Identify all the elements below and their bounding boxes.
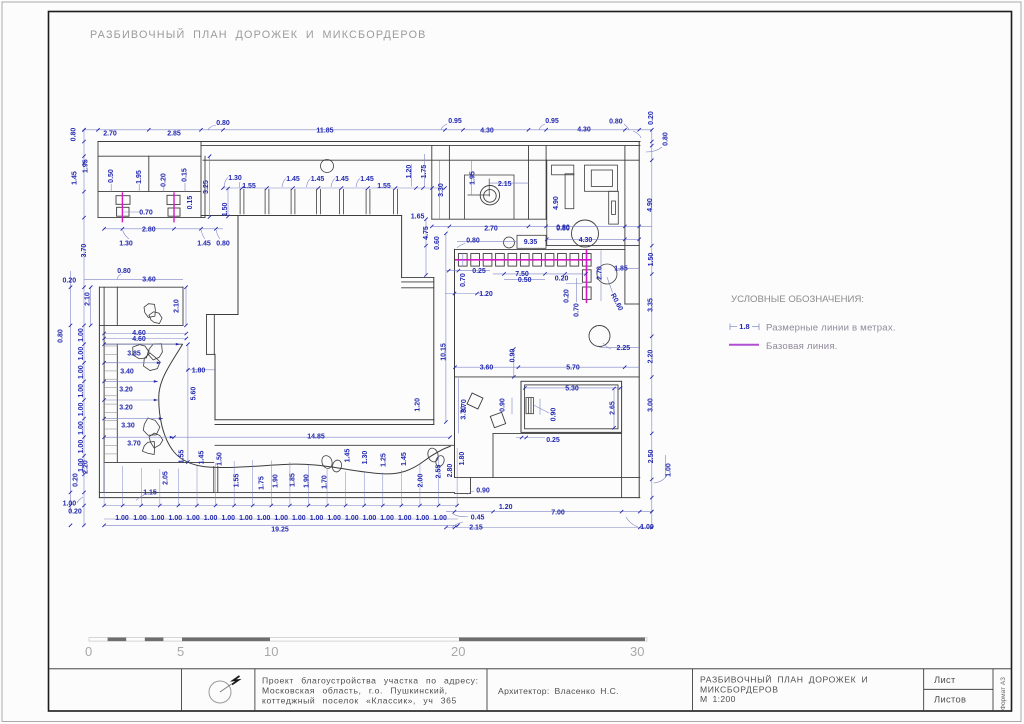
svg-text:0.20: 0.20	[68, 508, 82, 515]
svg-text:3.70: 3.70	[127, 440, 141, 447]
svg-text:0.90: 0.90	[500, 398, 507, 412]
svg-text:3.40: 3.40	[120, 368, 134, 375]
svg-text:3.60: 3.60	[142, 276, 156, 283]
svg-text:0: 0	[85, 644, 92, 659]
svg-text:3.30: 3.30	[438, 183, 445, 197]
svg-text:1.95: 1.95	[82, 159, 89, 173]
svg-text:3.85: 3.85	[127, 350, 141, 357]
svg-text:1.30: 1.30	[119, 240, 133, 247]
svg-text:1.15: 1.15	[143, 490, 157, 497]
svg-text:0.20: 0.20	[160, 173, 167, 187]
svg-text:1.00: 1.00	[78, 347, 85, 361]
svg-text:3.20: 3.20	[119, 404, 133, 411]
svg-text:Формат А3: Формат А3	[1000, 677, 1007, 710]
svg-text:РАЗБИВОЧНЫЙ ПЛАН ДОРОЖЕК И МИК: РАЗБИВОЧНЫЙ ПЛАН ДОРОЖЕК И МИКСБОРДЕРОВ	[90, 28, 427, 41]
svg-text:0.90: 0.90	[550, 408, 557, 422]
svg-text:4.75: 4.75	[423, 226, 430, 240]
svg-text:0.20: 0.20	[563, 289, 570, 303]
svg-text:2.70: 2.70	[597, 266, 604, 280]
svg-text:1.00: 1.00	[380, 515, 394, 522]
svg-text:4.90: 4.90	[647, 198, 654, 212]
svg-text:1.00: 1.00	[78, 328, 85, 342]
svg-text:0.60: 0.60	[434, 236, 441, 250]
svg-text:1.20: 1.20	[414, 398, 421, 412]
svg-text:1.55: 1.55	[242, 183, 256, 190]
svg-text:0.80: 0.80	[556, 225, 570, 232]
svg-text:2.50: 2.50	[648, 449, 655, 463]
svg-text:2.70: 2.70	[484, 225, 498, 232]
svg-text:1.45: 1.45	[311, 176, 325, 183]
svg-text:1.95: 1.95	[136, 170, 143, 184]
svg-text:0.80: 0.80	[216, 120, 230, 127]
svg-text:3.35: 3.35	[647, 298, 654, 312]
svg-text:2.55: 2.55	[435, 465, 442, 479]
svg-text:2.85: 2.85	[167, 130, 181, 137]
svg-text:1.45: 1.45	[198, 451, 205, 465]
svg-text:1.50: 1.50	[648, 253, 655, 267]
svg-text:5: 5	[177, 644, 184, 659]
svg-text:1.90: 1.90	[272, 474, 279, 488]
svg-text:0.15: 0.15	[181, 168, 188, 182]
svg-text:1.25: 1.25	[380, 453, 387, 467]
svg-text:1.00: 1.00	[204, 515, 218, 522]
svg-text:1.55: 1.55	[178, 450, 185, 464]
svg-text:9.35: 9.35	[524, 239, 538, 246]
svg-text:0.70: 0.70	[460, 273, 467, 287]
svg-text:0.80: 0.80	[609, 118, 623, 125]
svg-text:МИКСБОРДЕРОВ: МИКСБОРДЕРОВ	[700, 685, 779, 695]
svg-text:Базовая линия.: Базовая линия.	[766, 341, 838, 352]
svg-text:11.85: 11.85	[316, 127, 333, 134]
svg-text:3.30: 3.30	[121, 422, 135, 429]
svg-text:0.20: 0.20	[555, 276, 569, 283]
svg-text:0.95: 0.95	[545, 118, 559, 125]
svg-text:1.00: 1.00	[186, 515, 200, 522]
svg-text:0.95: 0.95	[448, 118, 462, 125]
svg-text:2.80: 2.80	[447, 464, 454, 478]
svg-text:19.25: 19.25	[271, 526, 289, 533]
svg-text:1.00: 1.00	[327, 515, 341, 522]
svg-text:1.30: 1.30	[228, 175, 242, 182]
svg-text:1.00: 1.00	[168, 515, 182, 522]
svg-text:1.00: 1.00	[345, 515, 359, 522]
svg-text:Размерные линии в метрах.: Размерные линии в метрах.	[766, 323, 896, 334]
svg-text:0.45: 0.45	[471, 514, 485, 521]
svg-text:2.20: 2.20	[82, 460, 89, 474]
svg-text:4.30: 4.30	[577, 126, 591, 133]
svg-text:3.20: 3.20	[119, 386, 133, 393]
svg-text:2.65: 2.65	[609, 401, 616, 415]
svg-text:0.15: 0.15	[187, 196, 194, 210]
svg-text:0.80: 0.80	[466, 238, 480, 245]
svg-text:1.00: 1.00	[239, 515, 253, 522]
svg-text:3.70: 3.70	[81, 244, 88, 258]
svg-text:0.80: 0.80	[216, 240, 230, 247]
svg-text:1.80: 1.80	[192, 367, 206, 374]
svg-text:0.70: 0.70	[139, 209, 153, 216]
svg-text:1.00: 1.00	[221, 515, 235, 522]
svg-text:1.00: 1.00	[274, 515, 288, 522]
svg-text:1.75: 1.75	[258, 476, 265, 490]
svg-text:1.00: 1.00	[257, 515, 271, 522]
svg-text:1.20: 1.20	[479, 291, 493, 298]
svg-text:1.45: 1.45	[71, 171, 78, 185]
svg-text:2.80: 2.80	[142, 227, 156, 234]
svg-text:1.80: 1.80	[459, 452, 466, 466]
svg-text:1.45: 1.45	[344, 449, 351, 463]
svg-text:1.8: 1.8	[739, 322, 749, 331]
svg-text:2.20: 2.20	[647, 350, 654, 364]
svg-text:1.65: 1.65	[411, 213, 425, 220]
svg-text:1.00: 1.00	[292, 515, 306, 522]
svg-text:5.60: 5.60	[190, 387, 197, 401]
svg-text:5.70: 5.70	[566, 364, 580, 371]
svg-text:4.60: 4.60	[132, 336, 146, 343]
svg-text:1.00: 1.00	[78, 384, 85, 398]
svg-text:1.45: 1.45	[197, 240, 211, 247]
svg-text:1.55: 1.55	[233, 474, 240, 488]
svg-text:10: 10	[264, 644, 278, 659]
svg-text:7.00: 7.00	[551, 510, 565, 517]
svg-text:1.95: 1.95	[469, 171, 476, 185]
svg-text:0.80: 0.80	[117, 268, 131, 275]
svg-text:1.55: 1.55	[377, 183, 391, 190]
svg-text:1.30: 1.30	[362, 451, 369, 465]
svg-text:0.80: 0.80	[57, 329, 64, 343]
svg-text:4.30: 4.30	[480, 127, 494, 134]
svg-text:4.90: 4.90	[553, 196, 560, 210]
svg-text:1.90: 1.90	[303, 474, 310, 488]
svg-text:1.45: 1.45	[286, 176, 300, 183]
svg-text:1.20: 1.20	[406, 165, 413, 179]
svg-text:1.85: 1.85	[289, 473, 296, 487]
svg-text:Архитектор: Власенко Н.С.: Архитектор: Власенко Н.С.	[498, 686, 619, 696]
svg-text:1.00: 1.00	[665, 463, 672, 477]
svg-text:14.85: 14.85	[307, 433, 325, 440]
svg-text:1.00: 1.00	[115, 515, 129, 522]
svg-text:2.70: 2.70	[103, 130, 117, 137]
svg-text:0.20: 0.20	[72, 473, 79, 487]
svg-text:1.20: 1.20	[499, 504, 513, 511]
svg-text:1.50: 1.50	[222, 202, 229, 216]
svg-text:Листов: Листов	[934, 695, 966, 705]
svg-text:2.05: 2.05	[162, 471, 169, 485]
svg-text:1.45: 1.45	[335, 176, 349, 183]
svg-text:1.70: 1.70	[321, 475, 328, 489]
svg-text:0.80: 0.80	[70, 128, 77, 142]
svg-text:1.45: 1.45	[401, 452, 408, 466]
svg-text:10.15: 10.15	[440, 343, 447, 361]
svg-text:5.30: 5.30	[565, 385, 579, 392]
svg-text:1.00: 1.00	[310, 515, 324, 522]
svg-text:0.50: 0.50	[108, 169, 115, 183]
svg-text:0.90: 0.90	[509, 349, 516, 363]
svg-text:0.90: 0.90	[476, 487, 490, 494]
svg-text:Проект благоустройства участ: Проект благоустройства участка по адресу…	[262, 676, 479, 686]
svg-text:0.50: 0.50	[518, 277, 532, 284]
svg-text:20: 20	[451, 644, 465, 659]
svg-text:1.00: 1.00	[398, 515, 412, 522]
svg-text:3.60: 3.60	[480, 364, 494, 371]
svg-text:1.00: 1.00	[133, 515, 147, 522]
svg-text:1.00: 1.00	[640, 524, 654, 531]
svg-text:1.50: 1.50	[216, 452, 223, 466]
svg-text:1.45: 1.45	[360, 176, 374, 183]
svg-text:1.00: 1.00	[151, 515, 165, 522]
svg-text:1.00: 1.00	[78, 365, 85, 379]
svg-text:1.00: 1.00	[78, 402, 85, 416]
svg-text:2.15: 2.15	[498, 181, 512, 188]
svg-text:Московская область, г.о. Пу: Московская область, г.о. Пушкинский,	[262, 686, 448, 696]
svg-text:1.85: 1.85	[614, 266, 628, 273]
svg-text:2.10: 2.10	[84, 292, 91, 306]
svg-text:1.00: 1.00	[78, 421, 85, 435]
svg-text:коттеджный поселок «Классик»: коттеджный поселок «Классик», уч 365	[262, 696, 457, 706]
svg-text:0.70: 0.70	[573, 303, 580, 317]
svg-text:1.00: 1.00	[363, 515, 377, 522]
svg-text:2.10: 2.10	[173, 299, 180, 313]
svg-text:0.20: 0.20	[62, 277, 76, 284]
svg-text:0.20: 0.20	[648, 111, 655, 125]
svg-text:3.25: 3.25	[203, 180, 210, 194]
svg-text:3.70: 3.70	[460, 406, 467, 420]
svg-text:УСЛОВНЫЕ ОБОЗНАЧЕНИЯ:: УСЛОВНЫЕ ОБОЗНАЧЕНИЯ:	[731, 294, 864, 305]
svg-text:2.25: 2.25	[616, 345, 630, 352]
svg-text:0.25: 0.25	[472, 268, 486, 275]
svg-text:РАЗБИВОЧНЫЙ ПЛАН ДОРОЖЕК И: РАЗБИВОЧНЫЙ ПЛАН ДОРОЖЕК И	[700, 674, 868, 685]
svg-text:1.00: 1.00	[63, 500, 77, 507]
svg-text:3.00: 3.00	[647, 398, 654, 412]
svg-text:1.00: 1.00	[416, 515, 430, 522]
svg-text:2.00: 2.00	[417, 474, 424, 488]
svg-text:Лист: Лист	[934, 675, 956, 685]
svg-text:2.15: 2.15	[469, 524, 483, 531]
svg-text:30: 30	[630, 644, 644, 659]
svg-text:0.25: 0.25	[546, 437, 560, 444]
svg-text:М 1:200: М 1:200	[700, 694, 736, 704]
svg-text:0.80: 0.80	[662, 132, 669, 146]
svg-text:1.00: 1.00	[433, 515, 447, 522]
svg-text:1.00: 1.00	[78, 440, 85, 454]
svg-text:4.30: 4.30	[579, 237, 593, 244]
